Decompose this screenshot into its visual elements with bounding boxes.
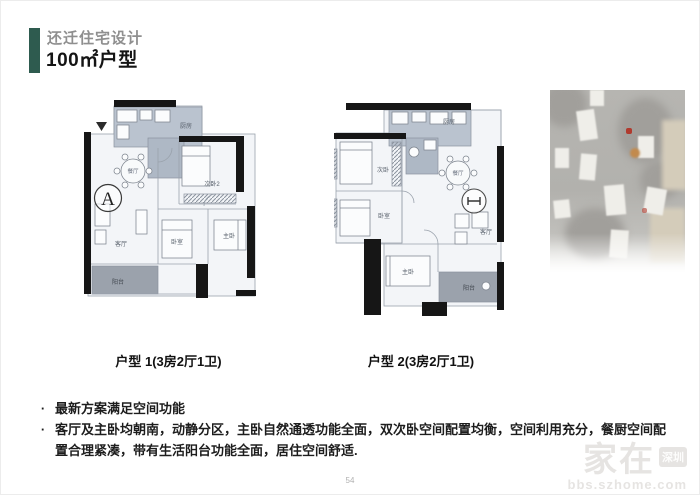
room-label-master: 主卧 [223, 232, 235, 240]
watermark-badge: 深圳 [659, 447, 687, 467]
slide: 还迁住宅设计 100㎡户型 [0, 0, 700, 495]
floorplan-2-drawing: 次卧 厨房 餐厅 卧室 主卧 客厅 阳台 [334, 94, 534, 349]
plan1-caption: 户型 1(3房2厅1卫) [71, 351, 266, 370]
room-label-bedroom: 卧室 [378, 212, 390, 220]
page-title: 100㎡户型 [46, 45, 138, 72]
list-item: · 最新方案满足空间功能 [31, 398, 676, 419]
watermark: 家在 深圳 bbs.szhome.com [568, 432, 687, 492]
room-label-bedroom: 卧室 [171, 238, 183, 246]
room-label-bedroom2: 次卧2 [204, 180, 220, 188]
accent-bar [29, 28, 40, 73]
room-label-balcony: 阳台 [463, 284, 475, 292]
bullet-marker: · [31, 419, 55, 440]
room-label-master: 主卧 [402, 268, 414, 276]
watermark-url: bbs.szhome.com [568, 477, 687, 492]
entrance-arrow-icon [96, 122, 107, 131]
room-label-dining: 餐厅 [452, 169, 464, 177]
bullet-marker: · [31, 398, 55, 419]
room-label-living: 客厅 [480, 228, 492, 236]
aerial-photo [550, 90, 685, 273]
room-label-bedroom1: 次卧 [377, 166, 389, 174]
plan2-caption: 户型 2(3房2厅1卫) [321, 351, 521, 370]
floorplan-1-drawing: A 厨房 餐厅 次卧2 主卧 卧室 客厅 阳台 [76, 94, 271, 349]
room-label-dining: 餐厅 [127, 167, 139, 175]
plan1-marker-label: A [101, 189, 115, 210]
bullet-text: 最新方案满足空间功能 [55, 398, 185, 419]
room-label-kitchen: 厨房 [443, 118, 455, 126]
watermark-brand: 家在 [583, 432, 655, 481]
room-label-balcony: 阳台 [112, 278, 124, 286]
room-label-kitchen: 厨房 [180, 122, 192, 130]
aerial-fade [550, 233, 685, 273]
room-label-living: 客厅 [115, 240, 127, 248]
